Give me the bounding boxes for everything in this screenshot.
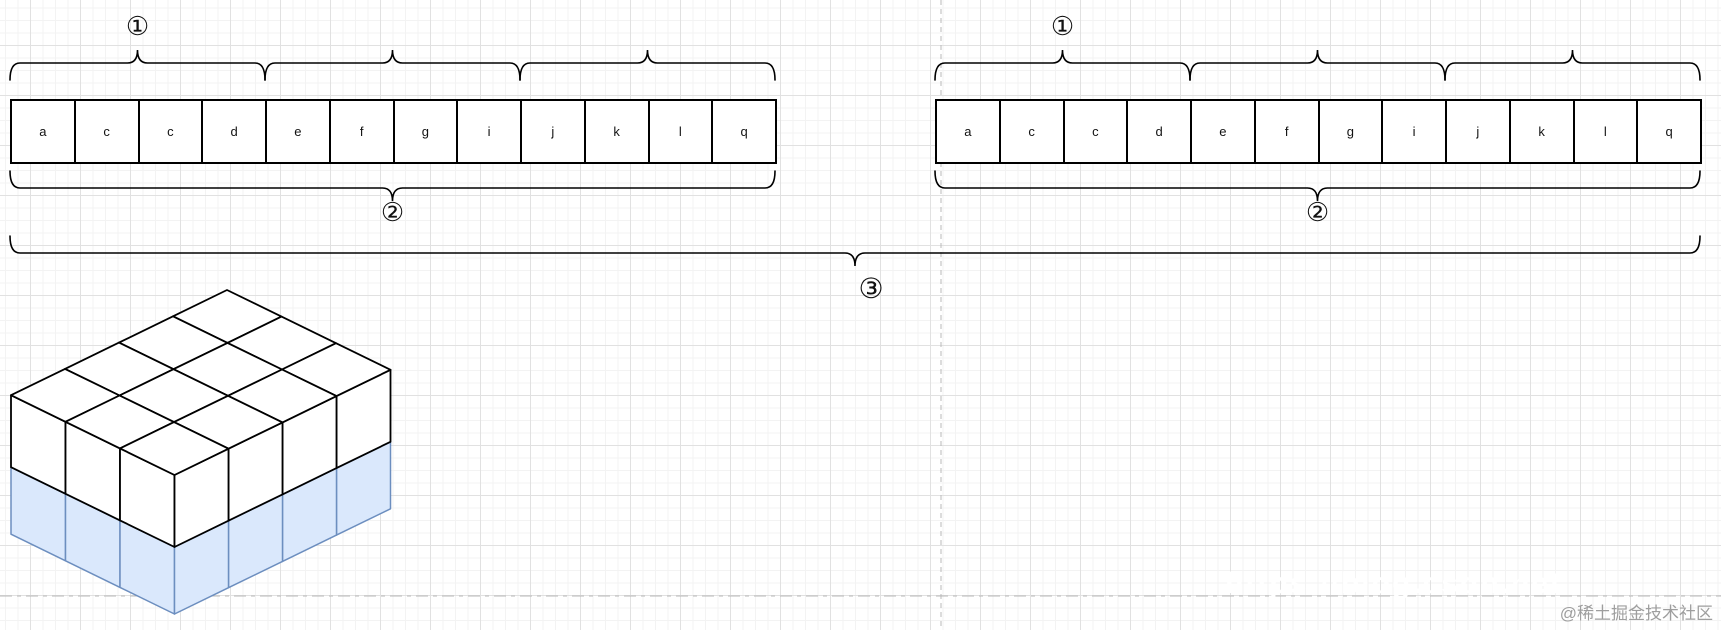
white-watermark-url: https://blog.csdn.net [1225,567,1562,601]
diagram-svg [0,0,1721,630]
array-cell: e [267,101,331,162]
array-cell: f [331,101,395,162]
array-cell: i [458,101,522,162]
array-cell: l [650,101,714,162]
array-cell: c [1065,101,1129,162]
array-cell: i [1383,101,1447,162]
array-cell: c [76,101,140,162]
array-cell: j [522,101,586,162]
group-brace-top [520,50,775,80]
array-cell: a [12,101,76,162]
array-cell: l [1575,101,1639,162]
group-brace-top [1190,50,1445,80]
juejin-watermark: @稀土掘金技术社区 [1560,599,1713,624]
array-cell: g [395,101,459,162]
label-circled-2: ② [381,199,404,225]
array-cell: a [937,101,1001,162]
diagram-canvas: accdefgijklq accdefgijklq https://blog.c… [0,0,1721,630]
array-cell: c [1001,101,1065,162]
array-cell: q [1638,101,1700,162]
array-cell: g [1320,101,1384,162]
array-cell: d [203,101,267,162]
label-circled-1: ① [1051,13,1074,39]
overall-brace [10,236,1700,266]
group-brace-top [10,50,265,80]
label-circled-2: ② [1306,199,1329,225]
label-circled-1: ① [126,13,149,39]
letter-array-right: accdefgijklq [935,99,1702,164]
array-cell: e [1192,101,1256,162]
array-cell: c [140,101,204,162]
array-cell: q [713,101,775,162]
array-cell: j [1447,101,1511,162]
label-circled-3: ③ [858,275,883,303]
group-brace-top [1445,50,1700,80]
array-cell: f [1256,101,1320,162]
array-cell: k [586,101,650,162]
group-brace-top [265,50,520,80]
letter-array-left: accdefgijklq [10,99,777,164]
group-brace-top [935,50,1190,80]
array-cell: d [1128,101,1192,162]
array-cell: k [1511,101,1575,162]
